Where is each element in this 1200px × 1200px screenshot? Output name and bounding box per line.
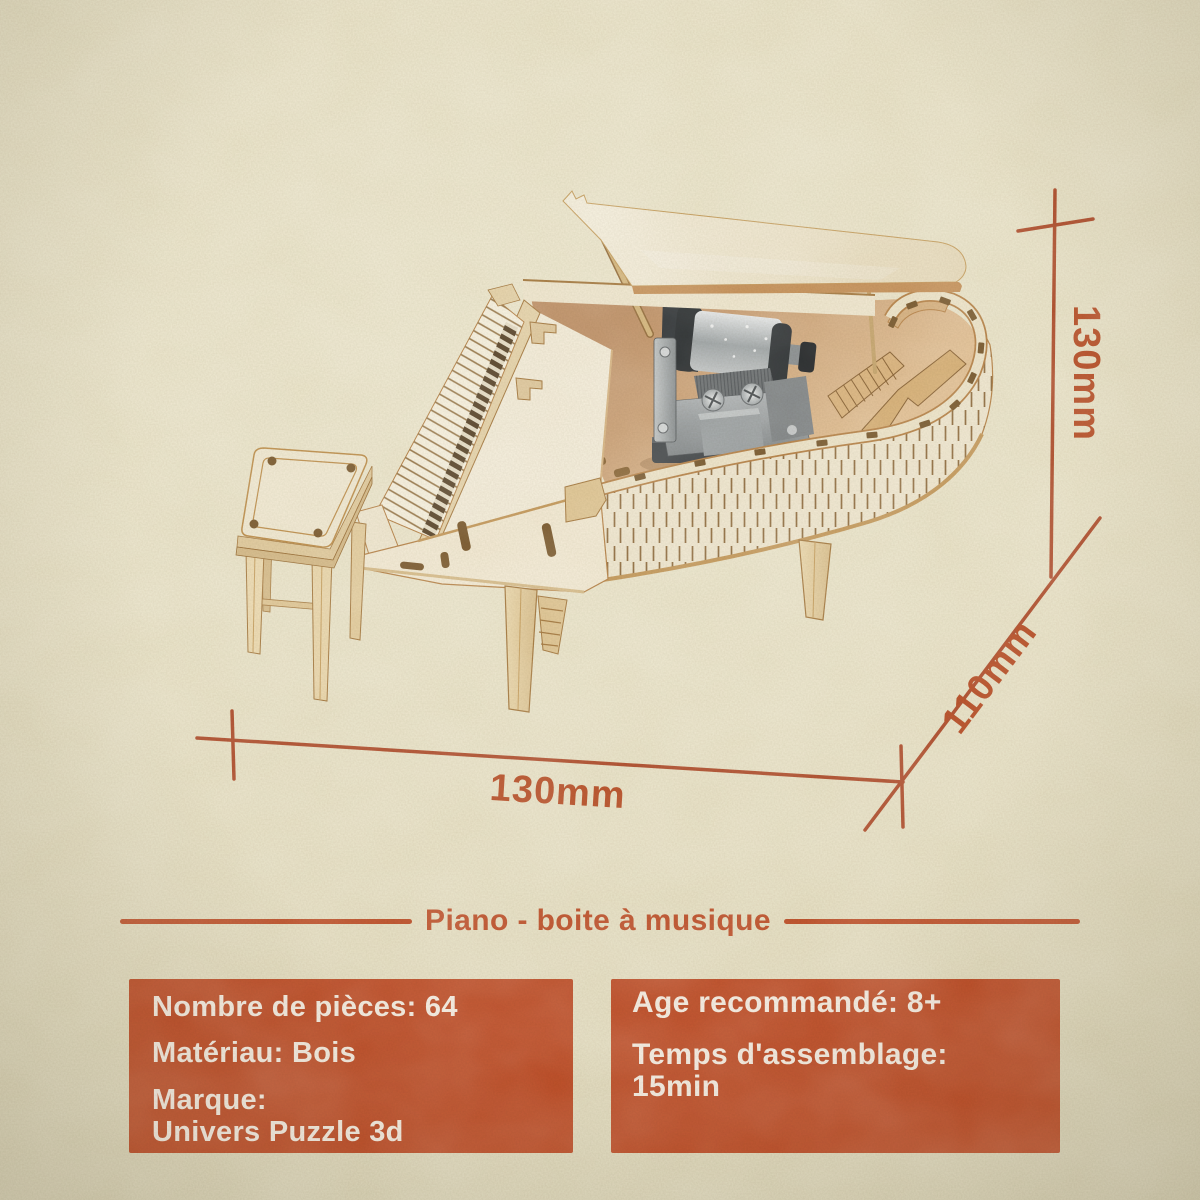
grand-piano	[356, 191, 993, 712]
spec-assembly-label: Temps d'assemblage:	[632, 1039, 1044, 1071]
width-dimension-tick-right	[901, 746, 903, 827]
depth-dimension-label: 110mm	[933, 612, 1044, 741]
spec-assembly-value: 15min	[632, 1071, 1044, 1103]
width-dimension-label: 130mm	[489, 767, 627, 817]
spec-assembly: Temps d'assemblage: 15min	[632, 1039, 1044, 1103]
spec-pieces: Nombre de pièces: 64	[152, 991, 555, 1023]
piano-stool	[236, 448, 372, 701]
title-rule-right	[784, 919, 1080, 924]
product-title: Piano - boite à musique	[425, 904, 771, 938]
spec-brand-label: Marque:	[152, 1084, 555, 1116]
product-infographic: 130mm 110mm 130mm Piano - boite à musiqu…	[0, 0, 1200, 1200]
width-dimension-tick	[232, 711, 234, 779]
height-dimension-line	[1051, 190, 1055, 577]
title-rule-left	[120, 919, 412, 924]
spec-age: Age recommandé: 8+	[632, 987, 1044, 1019]
specs-box-left: Nombre de pièces: 64 Matériau: Bois Marq…	[129, 979, 573, 1153]
product-title-row: Piano - boite à musique	[0, 899, 1200, 943]
height-dimension-label: 130mm	[1065, 305, 1107, 441]
spec-brand: Marque: Univers Puzzle 3d	[152, 1084, 555, 1148]
spec-material: Matériau: Bois	[152, 1037, 555, 1069]
spec-brand-value: Univers Puzzle 3d	[152, 1116, 555, 1148]
specs-box-right: Age recommandé: 8+ Temps d'assemblage: 1…	[611, 979, 1060, 1153]
